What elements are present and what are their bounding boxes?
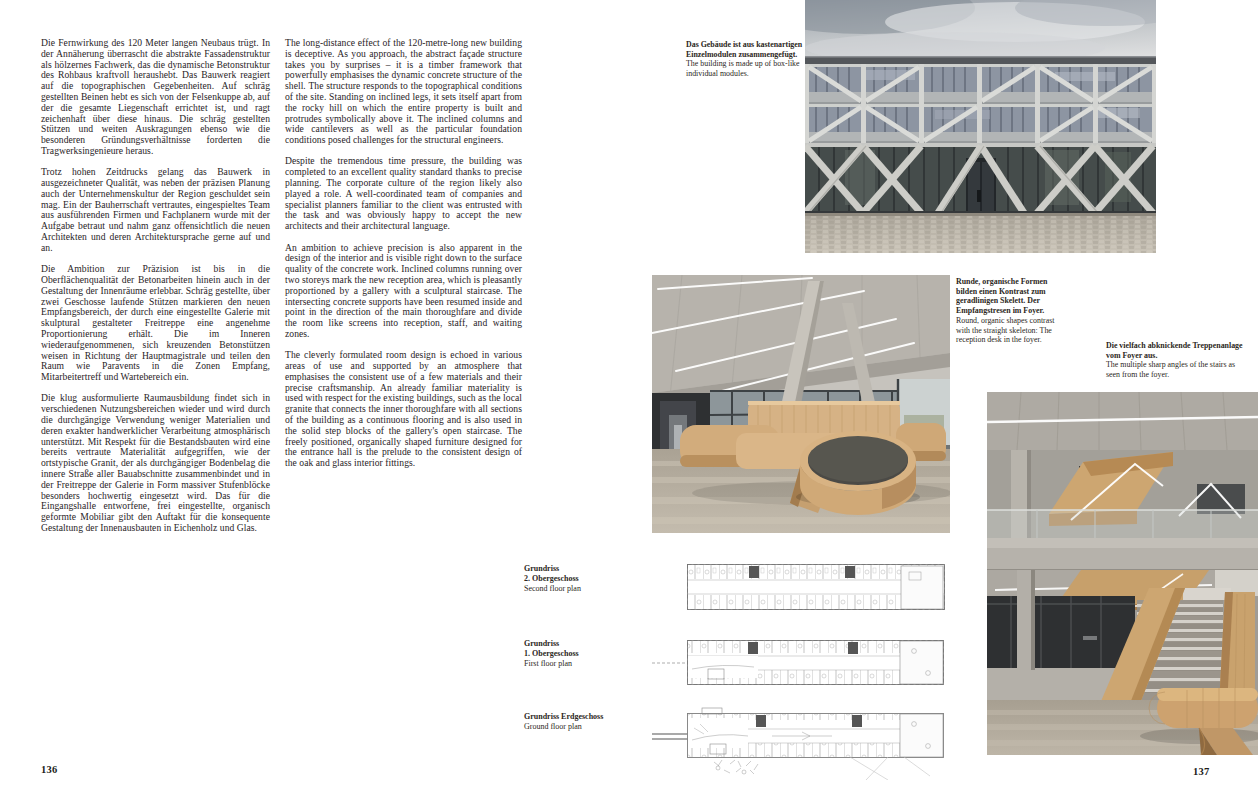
paragraph-german-3: Die Ambition zur Präzision ist bis in di… <box>41 264 270 383</box>
photo-stairs-image <box>987 392 1258 755</box>
plan2-line2: 1. Obergeschoss <box>524 649 579 659</box>
caption-facade: Das Gebäude ist aus kastenartigen Einzel… <box>686 40 804 79</box>
paragraph-english-1: The long-distance effect of the 120-metr… <box>285 38 522 146</box>
caption-reception-english: Round, organic shapes contrast with the … <box>956 316 1070 345</box>
floor-plan-first-floor <box>652 639 945 686</box>
facade-illustration <box>805 0 1156 253</box>
floor-plan-ground-floor <box>652 706 945 780</box>
plan3-line1: Grundriss Erdgeschoss <box>524 712 603 722</box>
text-column-english: The long-distance effect of the 120-metr… <box>285 38 522 479</box>
caption-reception: Runde, organische Formen bilden einen Ko… <box>956 277 1070 345</box>
caption-stairs-english: The multiple sharp angles of the stairs … <box>1106 360 1248 379</box>
plan-label-first-floor: Grundriss 1. Obergeschoss First floor pl… <box>524 639 579 669</box>
book-spread: Die Fernwirkung des 120 Meter langen Neu… <box>0 0 1258 801</box>
plan2-line3: First floor plan <box>524 659 579 669</box>
page-number-right: 137 <box>1193 766 1210 777</box>
stairs-illustration <box>987 392 1258 755</box>
caption-reception-german: Runde, organische Formen bilden einen Ko… <box>956 277 1070 316</box>
paragraph-german-4: Die klug ausformulierte Raumausbildung f… <box>41 393 270 533</box>
reception-illustration <box>652 275 950 533</box>
plan-label-ground-floor: Grundriss Erdgeschoss Ground floor plan <box>524 712 603 732</box>
plan-label-second-floor: Grundriss 2. Obergeschoss Second floor p… <box>524 564 581 594</box>
caption-facade-english: The building is made up of box-like indi… <box>686 59 804 78</box>
plan1-line1: Grundriss <box>524 564 581 574</box>
paragraph-english-4: The cleverly formulated room design is e… <box>285 350 522 469</box>
plan1-line2: 2. Obergeschoss <box>524 574 581 584</box>
paragraph-german-2: Trotz hohen Zeitdrucks gelang das Bauwer… <box>41 167 270 253</box>
paragraph-english-2: Despite the tremendous time pressure, th… <box>285 156 522 232</box>
page-number-left: 136 <box>41 764 58 775</box>
text-column-german: Die Fernwirkung des 120 Meter langen Neu… <box>41 38 270 544</box>
photo-facade-image <box>805 0 1156 253</box>
plan2-line1: Grundriss <box>524 639 579 649</box>
caption-facade-german: Das Gebäude ist aus kastenartigen Einzel… <box>686 40 804 59</box>
photo-reception-image <box>652 275 950 533</box>
caption-stairs: Die vielfach abknickende Treppenanlage v… <box>1106 341 1248 380</box>
caption-stairs-german: Die vielfach abknickende Treppenanlage v… <box>1106 341 1248 360</box>
plan3-line2: Ground floor plan <box>524 722 603 732</box>
plan1-line3: Second floor plan <box>524 584 581 594</box>
paragraph-english-3: An ambition to achieve precision is also… <box>285 243 522 340</box>
paragraph-german-1: Die Fernwirkung des 120 Meter langen Neu… <box>41 38 270 157</box>
floor-plan-second-floor <box>687 564 945 610</box>
